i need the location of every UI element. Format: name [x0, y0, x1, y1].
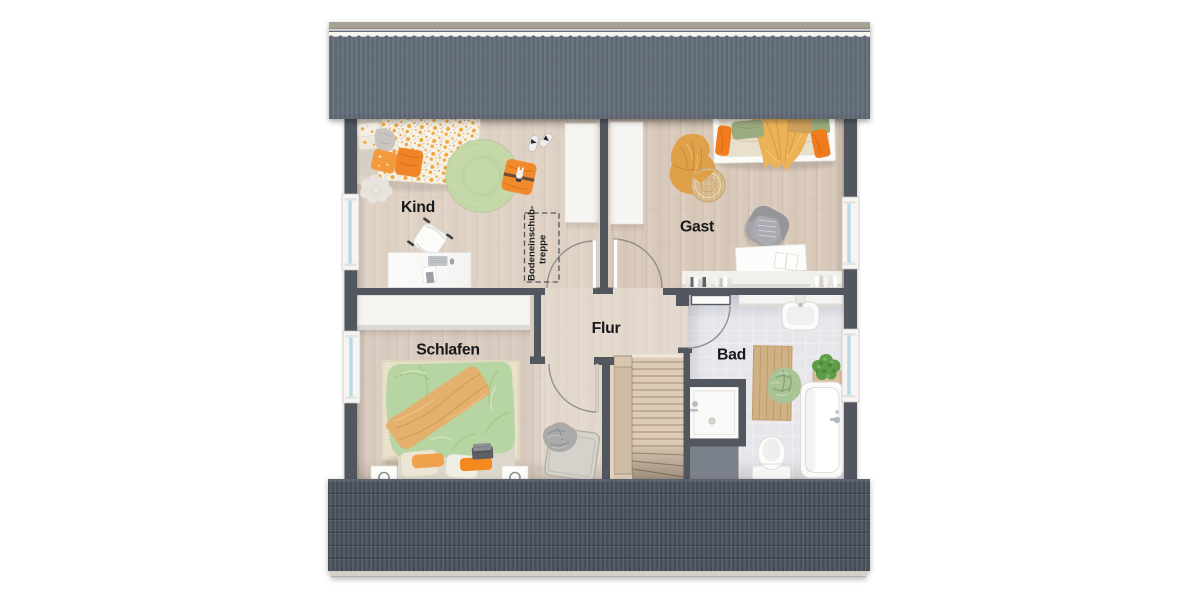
svg-text:treppe: treppe: [538, 235, 549, 264]
svg-text:Kind: Kind: [401, 199, 435, 216]
svg-text:Gast: Gast: [680, 219, 715, 236]
svg-text:Flur: Flur: [592, 320, 621, 337]
svg-text:Bad: Bad: [717, 347, 746, 364]
svg-text:Bodeneinschub-: Bodeneinschub-: [527, 206, 538, 281]
svg-text:Schlafen: Schlafen: [416, 342, 479, 359]
